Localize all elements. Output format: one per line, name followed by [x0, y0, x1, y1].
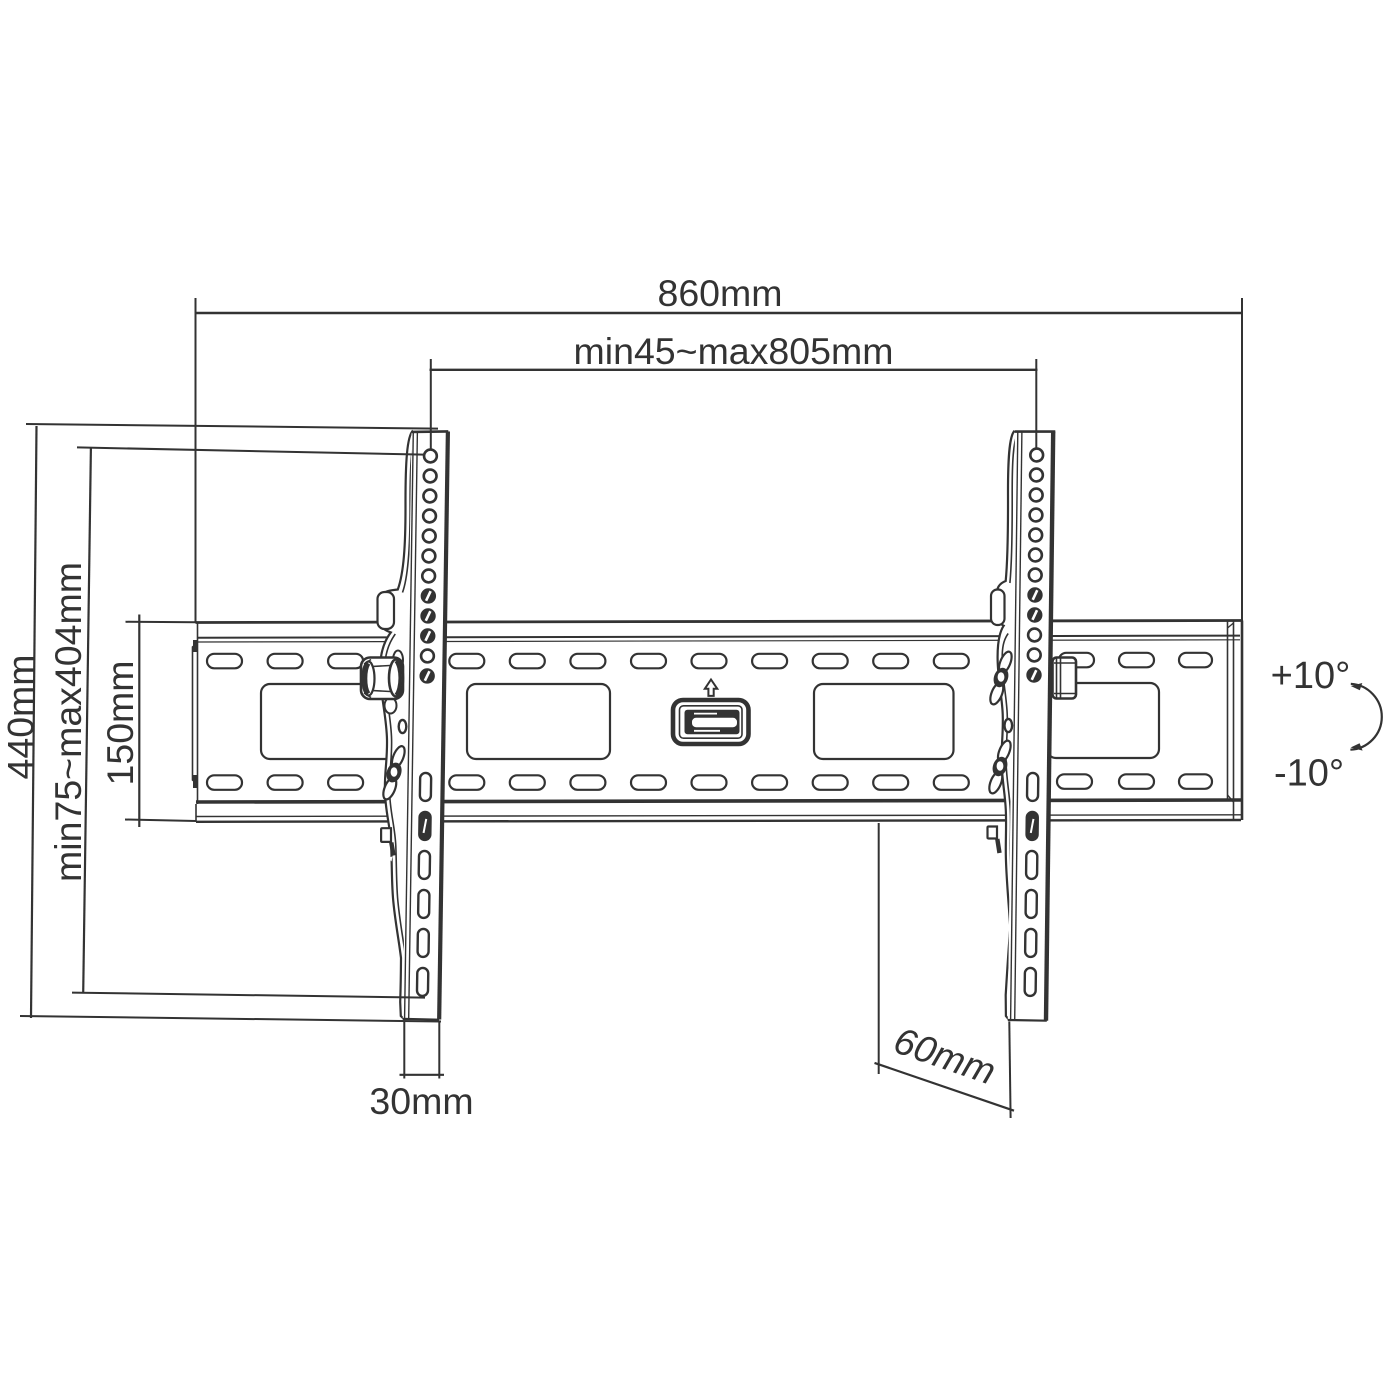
svg-text:+10°: +10° — [1271, 655, 1351, 697]
svg-text:440mm: 440mm — [0, 654, 42, 779]
svg-text:min45~max805mm: min45~max805mm — [574, 330, 894, 372]
svg-text:860mm: 860mm — [657, 272, 782, 314]
svg-text:150mm: 150mm — [99, 660, 141, 785]
svg-text:min75~max404mm: min75~max404mm — [47, 562, 89, 882]
svg-text:-10°: -10° — [1274, 753, 1344, 795]
svg-text:30mm: 30mm — [369, 1080, 473, 1122]
